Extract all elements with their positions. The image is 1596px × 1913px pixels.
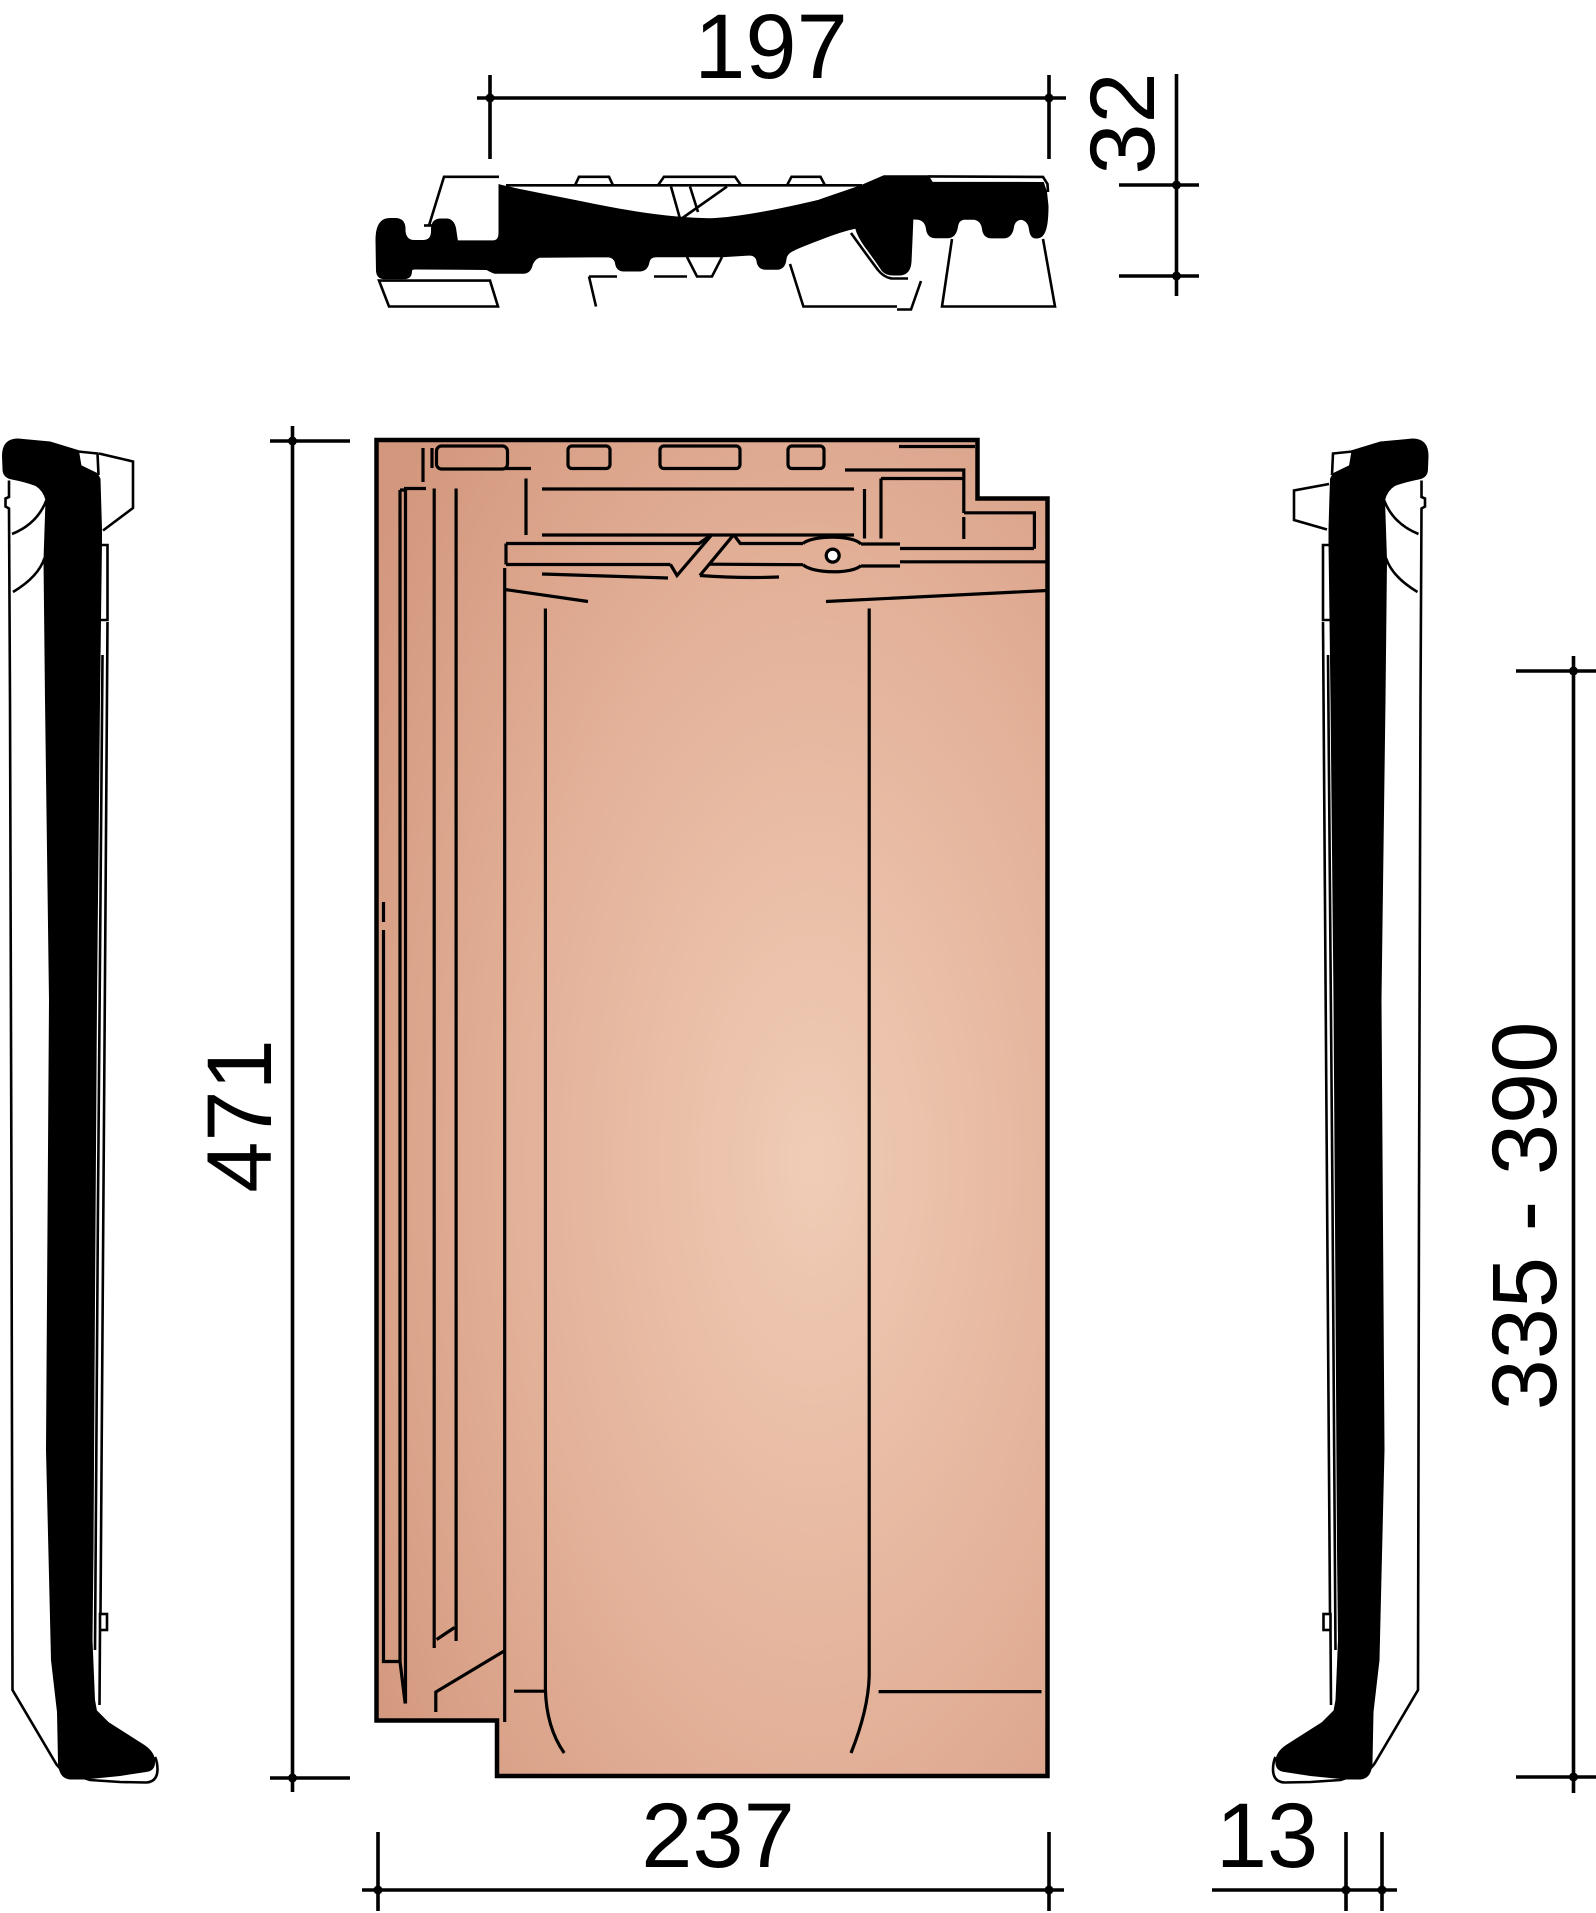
svg-text:237: 237 xyxy=(641,1785,795,1887)
svg-text:32: 32 xyxy=(1072,72,1174,174)
svg-text:197: 197 xyxy=(694,0,848,98)
svg-text:13: 13 xyxy=(1216,1785,1318,1887)
svg-text:471: 471 xyxy=(189,1039,291,1193)
svg-text:335 - 390: 335 - 390 xyxy=(1474,1022,1576,1411)
